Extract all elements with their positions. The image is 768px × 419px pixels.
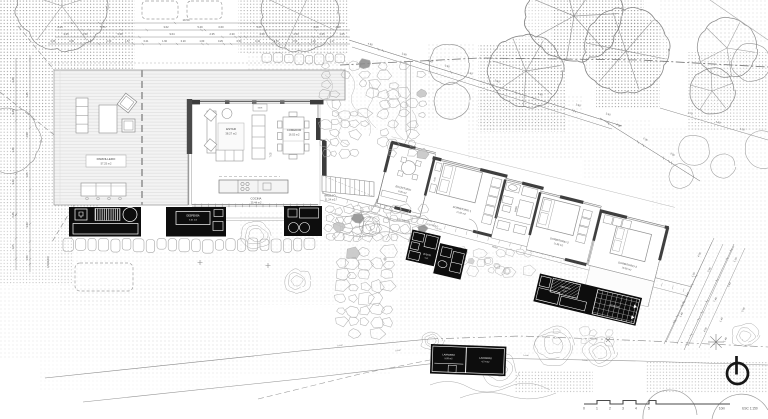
svg-text:31.24 m2: 31.24 m2 [325, 199, 336, 202]
svg-text:0.20: 0.20 [181, 40, 186, 43]
svg-text:0: 0 [583, 407, 585, 411]
svg-text:LAVADERO: LAVADERO [442, 353, 455, 356]
svg-text:2.40: 2.40 [335, 25, 341, 29]
svg-text:9.55 m2: 9.55 m2 [444, 358, 453, 360]
svg-text:3.45: 3.45 [63, 32, 69, 36]
svg-text:0.21: 0.21 [144, 40, 149, 43]
svg-text:3.62: 3.62 [163, 25, 169, 29]
svg-text:2.30: 2.30 [106, 40, 111, 43]
svg-text:Level: Level [523, 355, 529, 357]
svg-text:0.68: 0.68 [51, 40, 56, 43]
svg-text:4.77 m2: 4.77 m2 [481, 361, 490, 363]
svg-text:9.64: 9.64 [169, 32, 175, 36]
svg-text:19.50: 19.50 [183, 18, 190, 22]
svg-text:0.42: 0.42 [255, 40, 260, 43]
svg-text:1.60: 1.60 [199, 40, 204, 43]
svg-text:S/BR: S/BR [258, 108, 263, 110]
svg-text:3.45: 3.45 [11, 109, 15, 115]
svg-text:5.01 m2: 5.01 m2 [189, 220, 198, 222]
svg-text:0.50: 0.50 [292, 40, 297, 43]
svg-text:5.48: 5.48 [117, 32, 123, 36]
svg-text:5: 5 [648, 407, 650, 411]
svg-text:2.17: 2.17 [330, 40, 335, 43]
svg-text:0.29: 0.29 [218, 40, 223, 43]
svg-text:10m: 10m [719, 407, 726, 411]
svg-text:16.02 m2: 16.02 m2 [289, 133, 300, 137]
svg-text:2.48: 2.48 [11, 77, 15, 83]
svg-text:0.80: 0.80 [69, 40, 74, 43]
svg-text:ESC 1:150: ESC 1:150 [742, 407, 758, 411]
svg-text:LINDERO: LINDERO [46, 256, 50, 268]
svg-text:7.08: 7.08 [270, 152, 273, 157]
svg-text:5.49: 5.49 [197, 25, 203, 29]
svg-text:1.05: 1.05 [11, 244, 15, 250]
svg-text:0.60: 0.60 [313, 25, 319, 29]
svg-text:1.46: 1.46 [311, 40, 316, 43]
svg-text:1.05: 1.05 [25, 172, 29, 178]
svg-text:5.00: 5.00 [256, 25, 262, 29]
svg-text:1.67: 1.67 [125, 40, 130, 43]
svg-text:Level: Level [582, 360, 588, 362]
svg-text:25.44 m2: 25.44 m2 [251, 201, 262, 205]
svg-text:DESPENSA: DESPENSA [186, 215, 199, 218]
svg-text:1.46: 1.46 [11, 147, 15, 153]
svg-text:1.05: 1.05 [339, 32, 345, 36]
svg-text:1.60: 1.60 [162, 40, 167, 43]
svg-text:2.50: 2.50 [293, 32, 299, 36]
svg-text:1.45: 1.45 [25, 92, 29, 98]
svg-text:LAVADERO: LAVADERO [479, 357, 492, 360]
svg-text:0.50: 0.50 [237, 40, 242, 43]
svg-text:2.46: 2.46 [25, 132, 29, 138]
svg-text:1: 1 [596, 407, 598, 411]
svg-text:38.27 m2: 38.27 m2 [225, 132, 237, 136]
svg-text:0.45: 0.45 [57, 25, 63, 29]
svg-text:PARRILLERO: PARRILLERO [97, 157, 116, 161]
svg-text:ESTAR: ESTAR [226, 127, 237, 131]
svg-text:2.35: 2.35 [209, 32, 215, 36]
svg-text:1.47: 1.47 [88, 40, 93, 43]
svg-text:2.30: 2.30 [229, 32, 235, 36]
svg-text:0.60: 0.60 [218, 25, 224, 29]
svg-text:5.76: 5.76 [100, 25, 106, 29]
svg-text:4.50: 4.50 [274, 40, 279, 43]
svg-text:4.50: 4.50 [259, 32, 265, 36]
svg-text:0.45: 0.45 [319, 32, 325, 36]
svg-text:3.40: 3.40 [11, 179, 15, 185]
svg-text:4: 4 [635, 407, 637, 411]
svg-text:3: 3 [622, 407, 624, 411]
svg-text:COMEDOR: COMEDOR [287, 128, 302, 132]
svg-text:57.25 m2: 57.25 m2 [101, 162, 112, 166]
svg-text:1.50: 1.50 [82, 32, 88, 36]
svg-text:3.40: 3.40 [25, 222, 29, 228]
svg-text:1.50: 1.50 [25, 255, 29, 261]
svg-text:2: 2 [609, 407, 611, 411]
svg-text:COCINA: COCINA [251, 197, 262, 201]
svg-text:0.46: 0.46 [11, 212, 15, 218]
